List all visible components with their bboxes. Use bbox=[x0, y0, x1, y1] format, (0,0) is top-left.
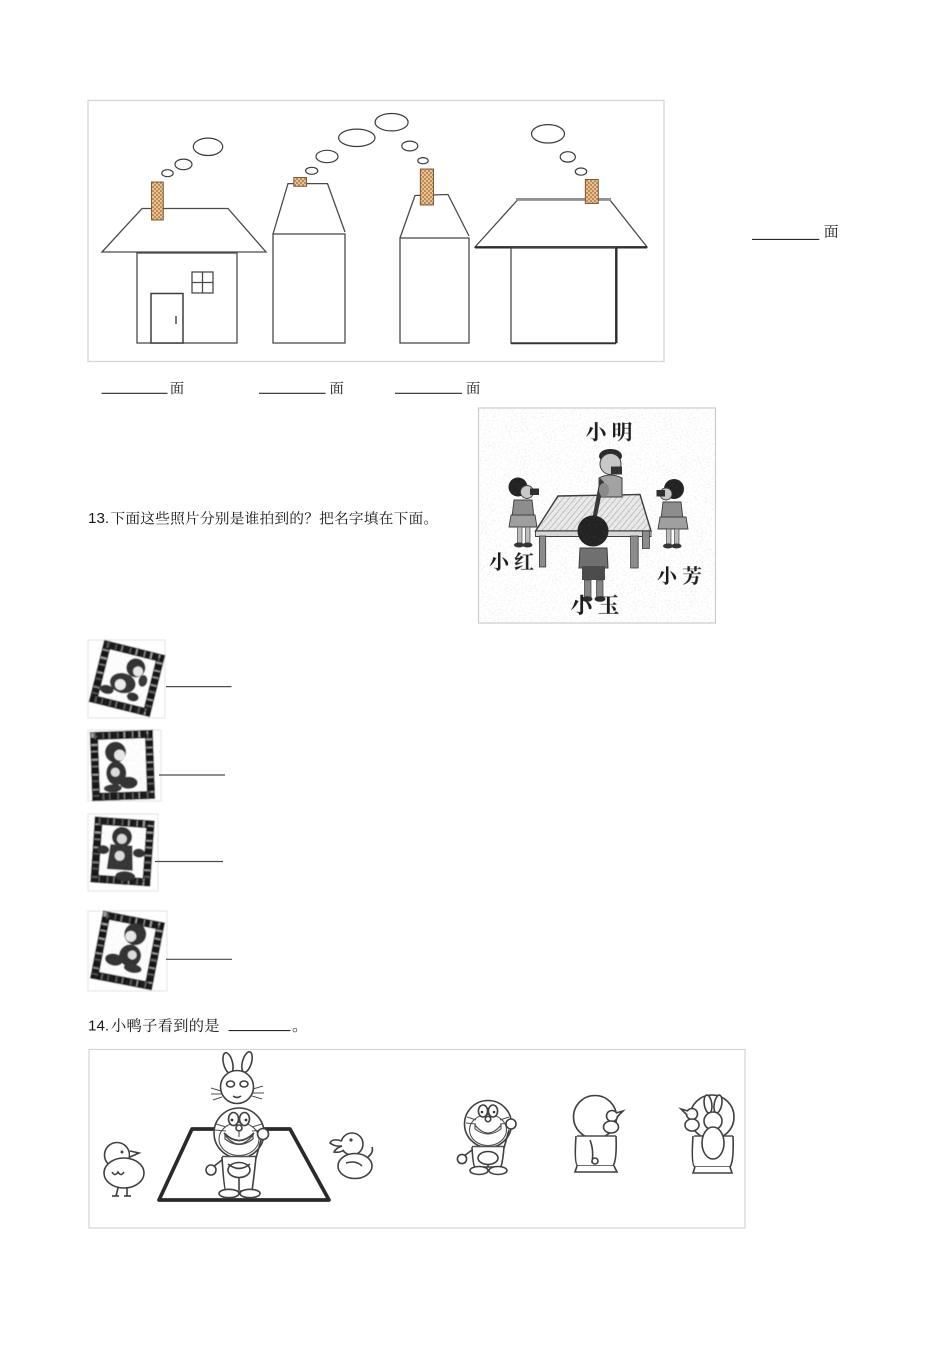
svg-text:13.: 13. bbox=[88, 510, 109, 527]
svg-text:14.: 14. bbox=[88, 1018, 109, 1035]
